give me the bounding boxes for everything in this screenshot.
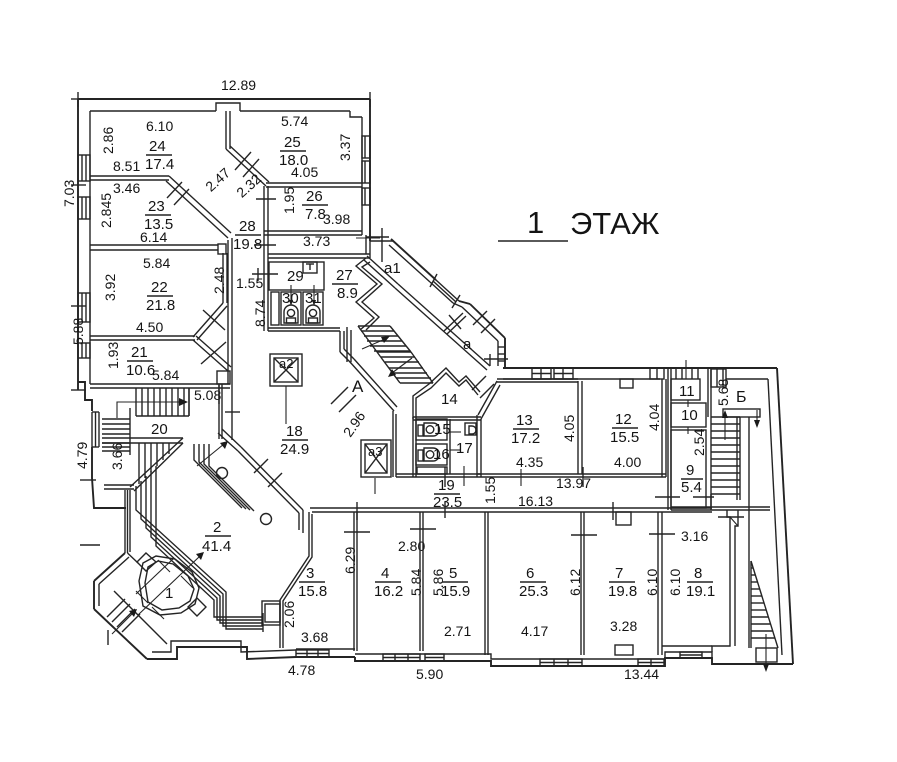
svg-text:5.08: 5.08 xyxy=(194,387,221,403)
svg-text:24: 24 xyxy=(149,138,166,155)
svg-text:15: 15 xyxy=(434,421,451,438)
svg-text:2.48: 2.48 xyxy=(211,267,227,294)
svg-text:6.10: 6.10 xyxy=(146,118,173,134)
svg-text:8.9: 8.9 xyxy=(337,285,358,302)
svg-text:3.98: 3.98 xyxy=(323,211,350,227)
svg-text:17.4: 17.4 xyxy=(145,156,174,173)
svg-text:15.9: 15.9 xyxy=(441,583,470,600)
svg-text:17.2: 17.2 xyxy=(511,430,540,447)
svg-text:5.84: 5.84 xyxy=(152,367,179,383)
svg-text:10: 10 xyxy=(681,407,698,424)
svg-text:13.44: 13.44 xyxy=(624,666,659,682)
svg-text:23: 23 xyxy=(148,198,165,215)
svg-text:5.90: 5.90 xyxy=(416,666,443,682)
svg-text:4.17: 4.17 xyxy=(521,623,548,639)
svg-text:2.86: 2.86 xyxy=(100,127,116,154)
svg-text:12.89: 12.89 xyxy=(221,77,256,93)
svg-text:1.95: 1.95 xyxy=(281,187,297,214)
svg-text:1.93: 1.93 xyxy=(105,342,121,369)
svg-text:5.84: 5.84 xyxy=(408,569,424,596)
svg-text:3.28: 3.28 xyxy=(610,618,637,634)
svg-text:a1: a1 xyxy=(384,260,401,277)
svg-text:11: 11 xyxy=(679,383,695,400)
svg-text:7.03: 7.03 xyxy=(61,180,77,207)
svg-text:4.00: 4.00 xyxy=(614,454,641,470)
svg-text:3.68: 3.68 xyxy=(301,629,328,645)
svg-text:Б: Б xyxy=(736,389,747,406)
svg-text:15.5: 15.5 xyxy=(610,429,639,446)
svg-text:8: 8 xyxy=(694,565,702,582)
svg-text:26: 26 xyxy=(306,188,323,205)
svg-text:4.79: 4.79 xyxy=(74,442,90,469)
svg-text:2.845: 2.845 xyxy=(98,193,114,228)
svg-text:17: 17 xyxy=(456,440,473,457)
svg-text:12: 12 xyxy=(615,411,632,428)
svg-text:4.50: 4.50 xyxy=(136,319,163,335)
svg-text:19.8: 19.8 xyxy=(608,583,637,600)
svg-text:3.37: 3.37 xyxy=(337,134,353,161)
svg-text:ЭТАЖ: ЭТАЖ xyxy=(570,206,660,241)
svg-text:16.2: 16.2 xyxy=(374,583,403,600)
svg-text:3.16: 3.16 xyxy=(681,528,708,544)
svg-text:a3: a3 xyxy=(368,444,382,459)
svg-text:4.04: 4.04 xyxy=(646,404,662,431)
svg-text:3.66: 3.66 xyxy=(109,443,125,470)
svg-text:9: 9 xyxy=(686,462,694,479)
svg-text:20: 20 xyxy=(151,421,168,438)
svg-text:1.55: 1.55 xyxy=(482,477,498,504)
svg-text:1: 1 xyxy=(527,205,544,240)
svg-text:3.92: 3.92 xyxy=(102,274,118,301)
svg-text:14: 14 xyxy=(441,391,458,408)
svg-text:21.8: 21.8 xyxy=(146,297,175,314)
svg-text:3.73: 3.73 xyxy=(303,233,330,249)
svg-text:23.5: 23.5 xyxy=(433,494,462,511)
svg-text:41.4: 41.4 xyxy=(202,538,231,555)
svg-text:4: 4 xyxy=(381,565,389,582)
svg-text:a2: a2 xyxy=(279,356,293,371)
svg-text:16.13: 16.13 xyxy=(518,493,553,509)
svg-text:21: 21 xyxy=(131,344,148,361)
svg-text:2: 2 xyxy=(213,519,221,536)
svg-text:6.10: 6.10 xyxy=(667,569,683,596)
svg-text:6: 6 xyxy=(526,565,534,582)
svg-text:24.9: 24.9 xyxy=(280,441,309,458)
svg-text:29: 29 xyxy=(287,268,304,285)
svg-text:2.80: 2.80 xyxy=(398,538,425,554)
svg-text:6.29: 6.29 xyxy=(342,547,358,574)
svg-text:3: 3 xyxy=(306,565,314,582)
svg-text:5.68: 5.68 xyxy=(715,379,731,406)
svg-text:16: 16 xyxy=(433,446,450,463)
svg-text:2.54: 2.54 xyxy=(691,429,707,456)
svg-text:5.88: 5.88 xyxy=(70,318,86,345)
svg-text:18: 18 xyxy=(286,423,303,440)
svg-text:4.35: 4.35 xyxy=(516,454,543,470)
svg-text:25: 25 xyxy=(284,134,301,151)
svg-text:3.46: 3.46 xyxy=(113,180,140,196)
svg-text:5.4: 5.4 xyxy=(681,479,702,496)
svg-text:15.8: 15.8 xyxy=(298,583,327,600)
svg-text:5.74: 5.74 xyxy=(281,113,308,129)
svg-text:13: 13 xyxy=(516,412,533,429)
svg-text:6.14: 6.14 xyxy=(140,229,167,245)
svg-text:4.05: 4.05 xyxy=(561,415,577,442)
svg-text:8.74: 8.74 xyxy=(252,300,268,327)
svg-text:1.55: 1.55 xyxy=(236,275,263,291)
svg-text:19: 19 xyxy=(438,477,455,494)
svg-text:8.51: 8.51 xyxy=(113,158,140,174)
svg-text:10.6: 10.6 xyxy=(126,362,155,379)
svg-text:7: 7 xyxy=(615,565,623,582)
svg-text:13.97: 13.97 xyxy=(556,475,591,491)
svg-text:27: 27 xyxy=(336,267,353,284)
svg-text:A: A xyxy=(352,377,364,396)
svg-text:2.71: 2.71 xyxy=(444,623,471,639)
svg-text:5: 5 xyxy=(449,565,457,582)
svg-text:a: a xyxy=(463,336,472,353)
svg-text:25.3: 25.3 xyxy=(519,583,548,600)
svg-text:28: 28 xyxy=(239,218,256,235)
svg-text:5.84: 5.84 xyxy=(143,255,170,271)
svg-text:22: 22 xyxy=(151,279,168,296)
svg-text:4.78: 4.78 xyxy=(288,662,315,678)
svg-text:19.1: 19.1 xyxy=(686,583,715,600)
svg-text:4.05: 4.05 xyxy=(291,164,318,180)
